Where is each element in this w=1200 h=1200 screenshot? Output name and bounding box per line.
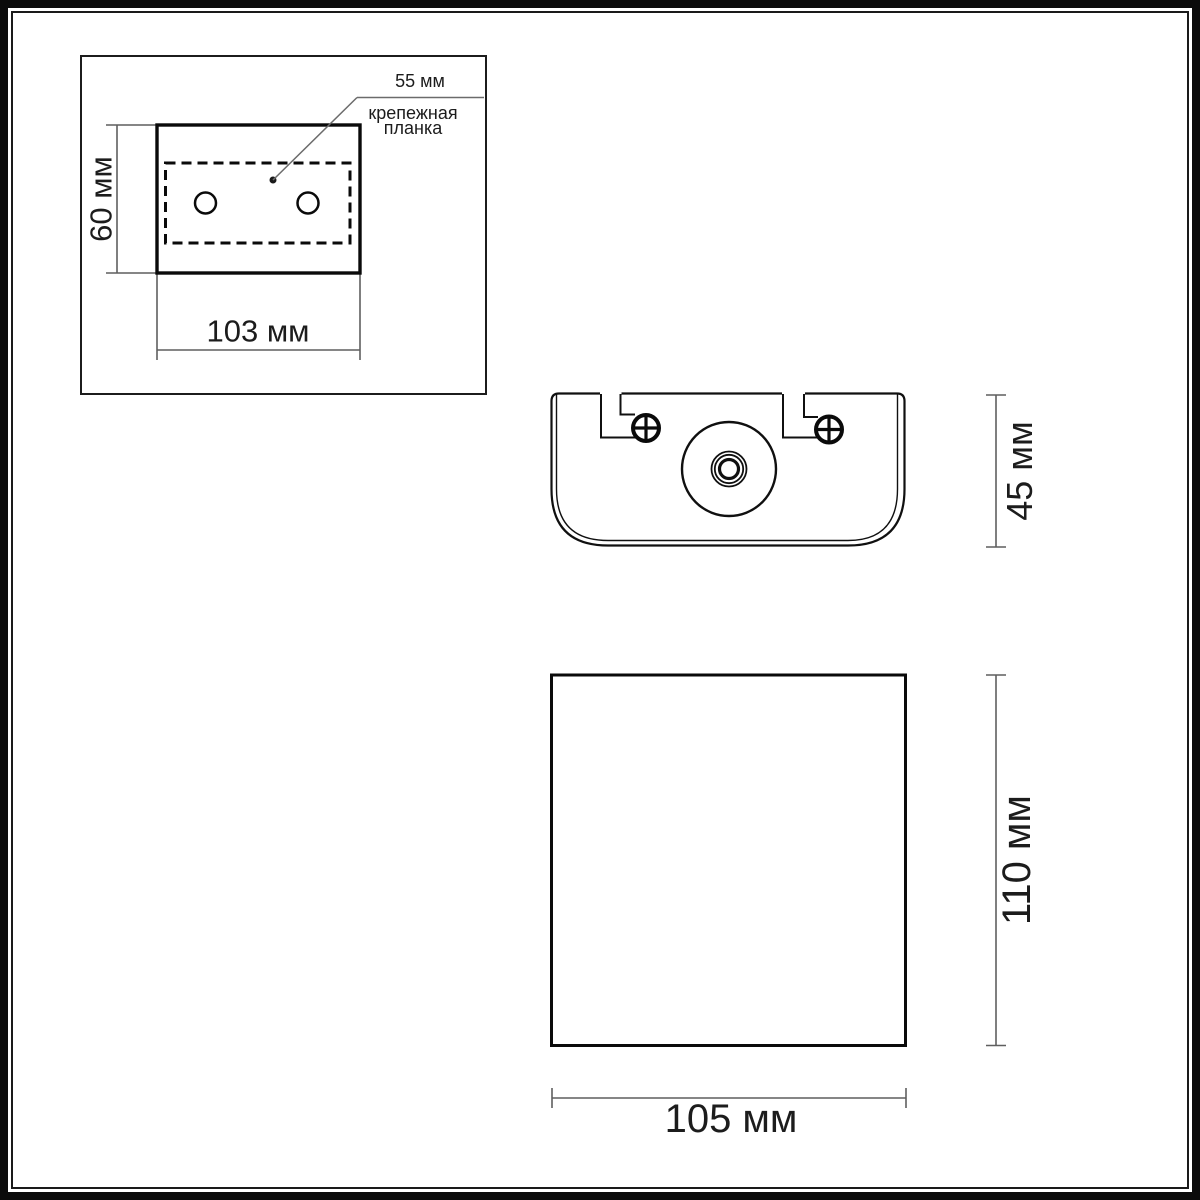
cable-entry-icon bbox=[682, 422, 776, 516]
front-view bbox=[552, 675, 1007, 1108]
drawing-linework bbox=[0, 0, 1200, 1200]
backplate-width-dimension-label: 103 мм bbox=[207, 316, 310, 347]
backplate-height-dimension-label: 60 мм bbox=[86, 156, 117, 242]
screw-right-icon bbox=[816, 415, 843, 444]
side-view bbox=[552, 391, 1007, 548]
bracket-notch-left bbox=[600, 391, 622, 397]
bracket-notch-right bbox=[782, 391, 805, 397]
front-outline bbox=[552, 675, 906, 1046]
screw-left-icon bbox=[633, 414, 660, 443]
mounting-hole-right-icon bbox=[298, 193, 319, 214]
side-height-dimension-label: 45 мм bbox=[1002, 421, 1038, 521]
technical-drawing-page: { "drawing": { "backplate_view": { "heig… bbox=[0, 0, 1200, 1200]
mounting-bar-callout-value: 55 мм bbox=[395, 72, 445, 90]
mounting-hole-left-icon bbox=[195, 193, 216, 214]
backplate-outline bbox=[157, 125, 360, 273]
front-width-dimension-label: 105 мм bbox=[665, 1099, 798, 1139]
front-height-dimension-label: 110 мм bbox=[997, 795, 1037, 925]
mounting-bar-callout-name: крепежная планка bbox=[368, 106, 457, 136]
mounting-bar-callout-name-line2: планка bbox=[368, 121, 457, 136]
